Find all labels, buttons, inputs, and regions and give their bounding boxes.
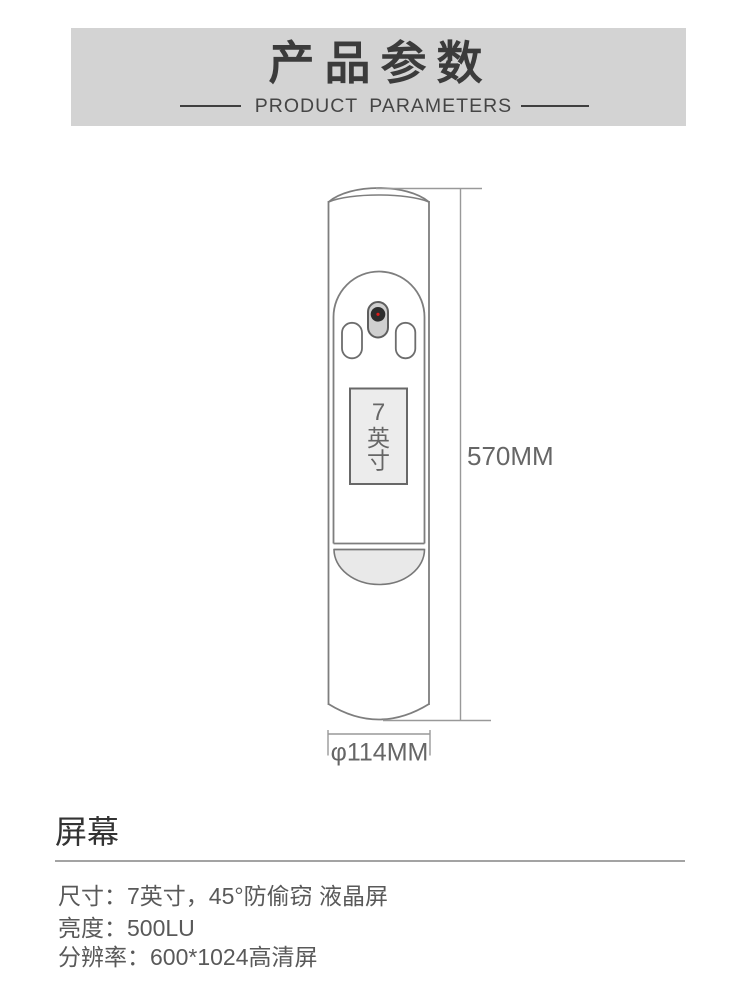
svg-text:570MM: 570MM: [467, 441, 554, 471]
svg-text:φ114MM: φ114MM: [331, 739, 429, 767]
svg-text:7: 7: [372, 399, 385, 426]
svg-text:寸: 寸: [367, 448, 390, 474]
